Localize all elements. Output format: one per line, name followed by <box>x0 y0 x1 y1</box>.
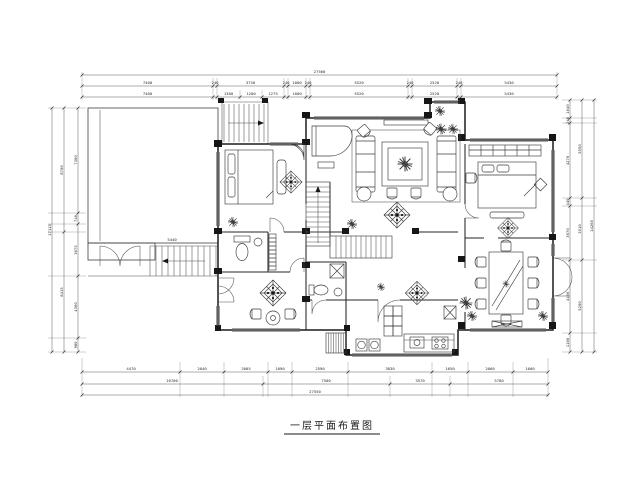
dim-label: 440 <box>565 198 570 206</box>
grand-piano-icon <box>312 126 352 156</box>
bedroom-left <box>225 144 304 227</box>
corridor <box>377 281 473 309</box>
dim-label: 240 <box>455 80 463 85</box>
dim-label: 240 <box>565 116 570 124</box>
window-living-top <box>314 117 424 120</box>
dim-label: 3070 <box>565 228 570 238</box>
dim-label: 3510 <box>577 224 582 234</box>
dim-label: 14260 <box>589 219 594 231</box>
dim-label: 5430 <box>504 80 514 85</box>
double-door-icon <box>100 246 140 266</box>
dim-label: 4360 <box>73 302 78 312</box>
dim-label: 7500 <box>321 378 331 383</box>
sink-basin <box>414 340 420 346</box>
dining-chair-icon <box>475 257 486 267</box>
dim-label: 5200 <box>577 301 582 311</box>
dim-label: 27560 <box>314 69 326 74</box>
sofa-left-icon <box>356 136 375 192</box>
fridge-cross <box>444 306 456 319</box>
dim-label: 1040 <box>565 104 570 114</box>
stair-arrowhead-icon <box>258 121 264 126</box>
corner-chair-icon <box>422 122 437 137</box>
dimension-chain-top: 27560 7400 240 3750 240 1000 240 5520 24… <box>81 69 559 100</box>
exterior-stairs-top <box>222 102 268 144</box>
dim-label: 240 <box>406 80 414 85</box>
side-table-icon <box>443 187 457 201</box>
window-balcony <box>434 101 460 104</box>
dim-label: 5520 <box>354 91 364 96</box>
sofa-right-icon <box>437 136 456 192</box>
console-icon <box>384 120 428 125</box>
laundry-corner <box>326 333 380 353</box>
dim-label: 2520 <box>430 91 440 96</box>
dim-label: 1000 <box>292 91 302 96</box>
side-table-icon <box>357 187 371 201</box>
dim-label: 240 <box>304 80 312 85</box>
dim-label: 17115 <box>47 223 52 235</box>
interior-staircase <box>306 182 392 258</box>
plant-icon <box>228 217 238 227</box>
dim-label: 7360 <box>73 155 78 165</box>
dim-label: 1600 <box>525 366 535 371</box>
bathroom-small <box>309 264 344 296</box>
dryer-drum <box>371 341 379 349</box>
burner <box>442 344 446 348</box>
dimension-chain-right: 1040 240 4270 440 3070 4100 1100 5550 35… <box>562 99 597 354</box>
dim-label: 5550 <box>577 144 582 154</box>
dim-label: 8700 <box>59 165 64 175</box>
title-block: 一层平面布置图 <box>284 420 380 434</box>
burner <box>442 339 446 343</box>
dining-chair-icon <box>475 299 486 309</box>
hatch-lines <box>329 333 344 353</box>
dimension-lines <box>82 75 557 97</box>
floor-medallion-icon <box>405 281 428 304</box>
corner-shelf-icon <box>288 144 304 160</box>
pantry-cell <box>393 316 402 326</box>
dimension-lines <box>52 108 78 352</box>
dim-label: 980 <box>73 341 78 349</box>
dining-chair-icon <box>528 278 539 288</box>
dim-label: 1100 <box>565 337 570 347</box>
drawing-title: 一层平面布置图 <box>290 420 374 432</box>
sink-icon <box>334 288 342 296</box>
extension-lines <box>48 108 86 352</box>
burner <box>435 339 439 343</box>
bench-icon <box>490 212 524 218</box>
terrace: 5440 <box>88 108 218 260</box>
dim-label: 2590 <box>315 366 325 371</box>
dim-label: 740 <box>73 214 78 222</box>
dim-label: 2520 <box>430 80 440 85</box>
door-bedroom-right <box>465 204 479 218</box>
dimension-chain-bottom: 4470 2040 2005 1090 2590 3830 1650 2060 … <box>81 358 550 397</box>
shelf-rungs <box>269 238 276 266</box>
dim-label: 4470 <box>126 366 136 371</box>
door-bathroom-left <box>290 258 304 272</box>
table-plant-icon <box>398 157 413 172</box>
dim-label: 3675 <box>73 245 78 255</box>
sink-icon <box>410 337 424 348</box>
plant-icon <box>435 106 445 116</box>
dim-label: 3570 <box>415 378 425 383</box>
door-bedroom-left <box>270 218 284 232</box>
pantry-cell <box>384 316 393 326</box>
dim-label: 7400 <box>143 91 153 96</box>
terrace-ledge <box>88 243 155 260</box>
entry-double-door <box>218 278 234 302</box>
dim-label: 240 <box>282 80 290 85</box>
pantry-cell <box>393 326 402 336</box>
armchair-icon <box>411 188 421 199</box>
window-bottom-wall <box>232 329 546 357</box>
dim-label: 240 <box>211 80 219 85</box>
dim-label: 3750 <box>246 80 256 85</box>
armchair-icon <box>387 188 397 199</box>
burner <box>435 344 439 348</box>
foyer-chair-icon <box>285 309 296 319</box>
dim-label: 1300 <box>224 91 234 96</box>
door-kitchen <box>378 300 400 322</box>
window-bedroom-right <box>470 139 548 142</box>
stair-treads <box>336 236 386 258</box>
armchair-icon <box>466 173 477 183</box>
plant-icon <box>467 311 477 321</box>
floor-medallion-icon <box>498 218 519 239</box>
dining-room <box>467 240 548 327</box>
exterior-stairs-left <box>88 246 218 276</box>
dining-chair-icon <box>528 257 539 267</box>
floor-medallion-icon <box>260 280 286 306</box>
stove-icon <box>432 337 448 349</box>
bed-icon <box>478 162 536 208</box>
plant-icon <box>347 219 357 229</box>
dim-label: 8415 <box>59 287 64 297</box>
bathroom-left <box>234 234 276 270</box>
dining-chair-icon <box>501 240 511 251</box>
kitchen <box>384 306 456 352</box>
pantry-cell <box>384 326 393 336</box>
dim-label: 1090 <box>275 366 285 371</box>
pantry-cell <box>384 306 393 316</box>
door-bath-small <box>312 300 326 314</box>
shelf-icon <box>269 234 276 270</box>
dim-label: 27550 <box>309 389 321 394</box>
dim-label: 2060 <box>485 366 495 371</box>
living-room <box>312 120 460 229</box>
toilet-tank-icon <box>309 285 314 295</box>
foyer <box>250 280 296 325</box>
foyer-chair-icon <box>250 309 261 319</box>
plant-icon <box>460 297 473 310</box>
shower-cross <box>330 264 344 278</box>
dim-label: 2040 <box>197 366 207 371</box>
dim-label: 7400 <box>143 80 153 85</box>
dim-label: 4270 <box>565 155 570 165</box>
dimension-ticks <box>51 107 80 354</box>
wardrobe-divisions <box>469 145 541 156</box>
terrace-dim-label: 5440 <box>167 237 177 242</box>
dim-label: 1275 <box>268 91 278 96</box>
dim-label: 5520 <box>354 80 364 85</box>
centerpiece-icon <box>503 281 510 288</box>
floor-plan-sheet: 27560 7400 240 3750 240 1000 240 5520 24… <box>0 0 618 495</box>
dim-label: 1650 <box>445 366 455 371</box>
dim-label: 5780 <box>494 378 504 383</box>
dimension-chain-left: 7360 740 3675 4360 980 8700 8415 17115 <box>47 107 86 354</box>
dining-chair-icon <box>475 278 486 288</box>
plant-icon <box>448 124 458 134</box>
dining-chair-icon <box>528 299 539 309</box>
dim-label: 1200 <box>246 91 256 96</box>
bedroom-right <box>466 145 547 238</box>
toilet-tank-icon <box>234 236 250 242</box>
piano-bench-icon <box>318 162 334 168</box>
pantry-cell <box>393 306 402 316</box>
stair-arrowhead-icon <box>162 259 168 264</box>
dim-label: 1000 <box>292 80 302 85</box>
dim-label: 10700 <box>166 378 178 383</box>
round-table-icon <box>266 311 280 325</box>
floor-medallion-icon <box>384 202 410 228</box>
dim-label: 2005 <box>241 366 251 371</box>
toilet-icon <box>314 285 328 295</box>
sink-icon <box>254 238 262 246</box>
toilet-icon <box>236 244 248 261</box>
french-doors-dining <box>553 258 572 296</box>
washer-drum <box>358 341 366 349</box>
terrace-outline <box>88 108 218 243</box>
dim-label: 5430 <box>504 91 514 96</box>
floor-plan-svg: 27560 7400 240 3750 240 1000 240 5520 24… <box>0 0 618 495</box>
plant-icon <box>377 283 385 291</box>
plant-icon <box>538 311 548 321</box>
dim-label: 3830 <box>385 366 395 371</box>
plant-icon <box>436 124 447 135</box>
